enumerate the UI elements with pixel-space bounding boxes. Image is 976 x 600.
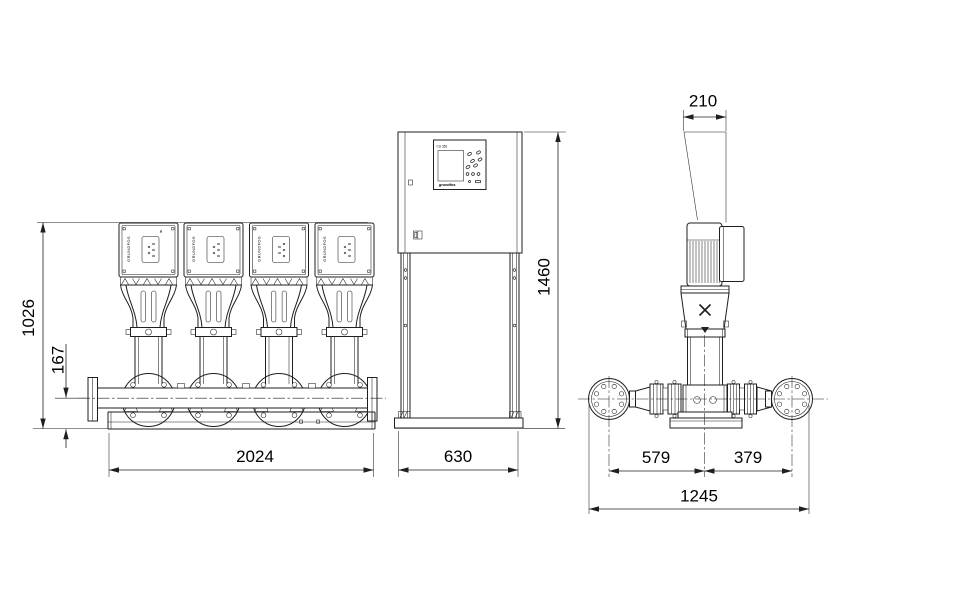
panel-brand-label: grundfos [438,183,455,187]
dimensional-drawing: GRUNDFOS [0,0,976,600]
dim-label-discharge-offset: 379 [734,448,762,467]
control-cabinet-view: CU 352 grundfos [395,132,567,477]
manifold [78,378,386,422]
dim-label-cabinet-height: 1460 [534,258,553,296]
cabinet-stand [399,253,522,418]
side-view: 210 579 379 1245 [578,92,828,515]
dim-label-suction-offset: 579 [642,448,670,467]
dim-label-front-length: 2024 [236,447,274,466]
drawing-svg: GRUNDFOS [0,0,976,600]
pump-head [681,286,729,385]
dim-discharge-offset: 379 [705,448,793,471]
dim-front-length: 2024 [109,433,374,477]
service-clearance-outline [684,132,726,223]
dim-label-cabinet-width: 630 [444,447,472,466]
grundfos-logo-icon [700,305,711,316]
controller-label: CU 352 [437,145,448,149]
dim-suction-offset: 579 [609,448,705,471]
drive-box-side [720,227,745,282]
dim-label-motor-clearance: 210 [689,92,717,111]
motor-side [687,223,744,286]
dim-cabinet-width: 630 [399,431,519,477]
dim-manifold-center-height: 167 [48,344,88,448]
dim-label-overall-depth: 1245 [680,487,718,506]
dim-label-overall-height: 1026 [19,299,38,337]
dim-cabinet-height: 1460 [524,132,566,428]
cabinet-base [395,418,524,428]
dim-label-manifold-center-height: 167 [48,346,67,374]
flow-arrow-icon [701,327,709,333]
front-view: 1026 167 2024 [19,223,386,478]
dim-motor-clearance: 210 [684,92,727,132]
